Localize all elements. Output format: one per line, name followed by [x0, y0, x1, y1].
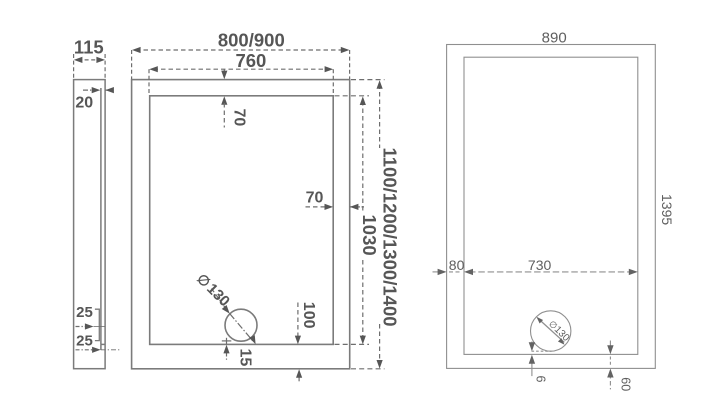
svg-text:70: 70	[230, 109, 247, 127]
svg-text:800/900: 800/900	[218, 30, 285, 51]
svg-text:20: 20	[75, 94, 93, 111]
svg-text:70: 70	[306, 189, 324, 206]
svg-text:80: 80	[449, 257, 465, 273]
svg-text:25: 25	[76, 304, 93, 321]
svg-text:6: 6	[533, 376, 547, 383]
svg-text:60: 60	[618, 377, 632, 391]
svg-text:1100/1200/1300/1400: 1100/1200/1300/1400	[379, 148, 400, 327]
svg-text:100: 100	[300, 302, 317, 329]
svg-text:890: 890	[542, 30, 567, 47]
svg-text:115: 115	[74, 36, 104, 57]
svg-text:1030: 1030	[359, 215, 380, 256]
svg-text:∅130: ∅130	[193, 270, 233, 310]
svg-text:760: 760	[235, 50, 266, 71]
svg-text:25: 25	[76, 332, 93, 349]
svg-text:1395: 1395	[659, 194, 675, 225]
svg-text:∅130: ∅130	[546, 319, 571, 344]
svg-text:15: 15	[237, 349, 254, 367]
svg-text:730: 730	[528, 257, 552, 273]
